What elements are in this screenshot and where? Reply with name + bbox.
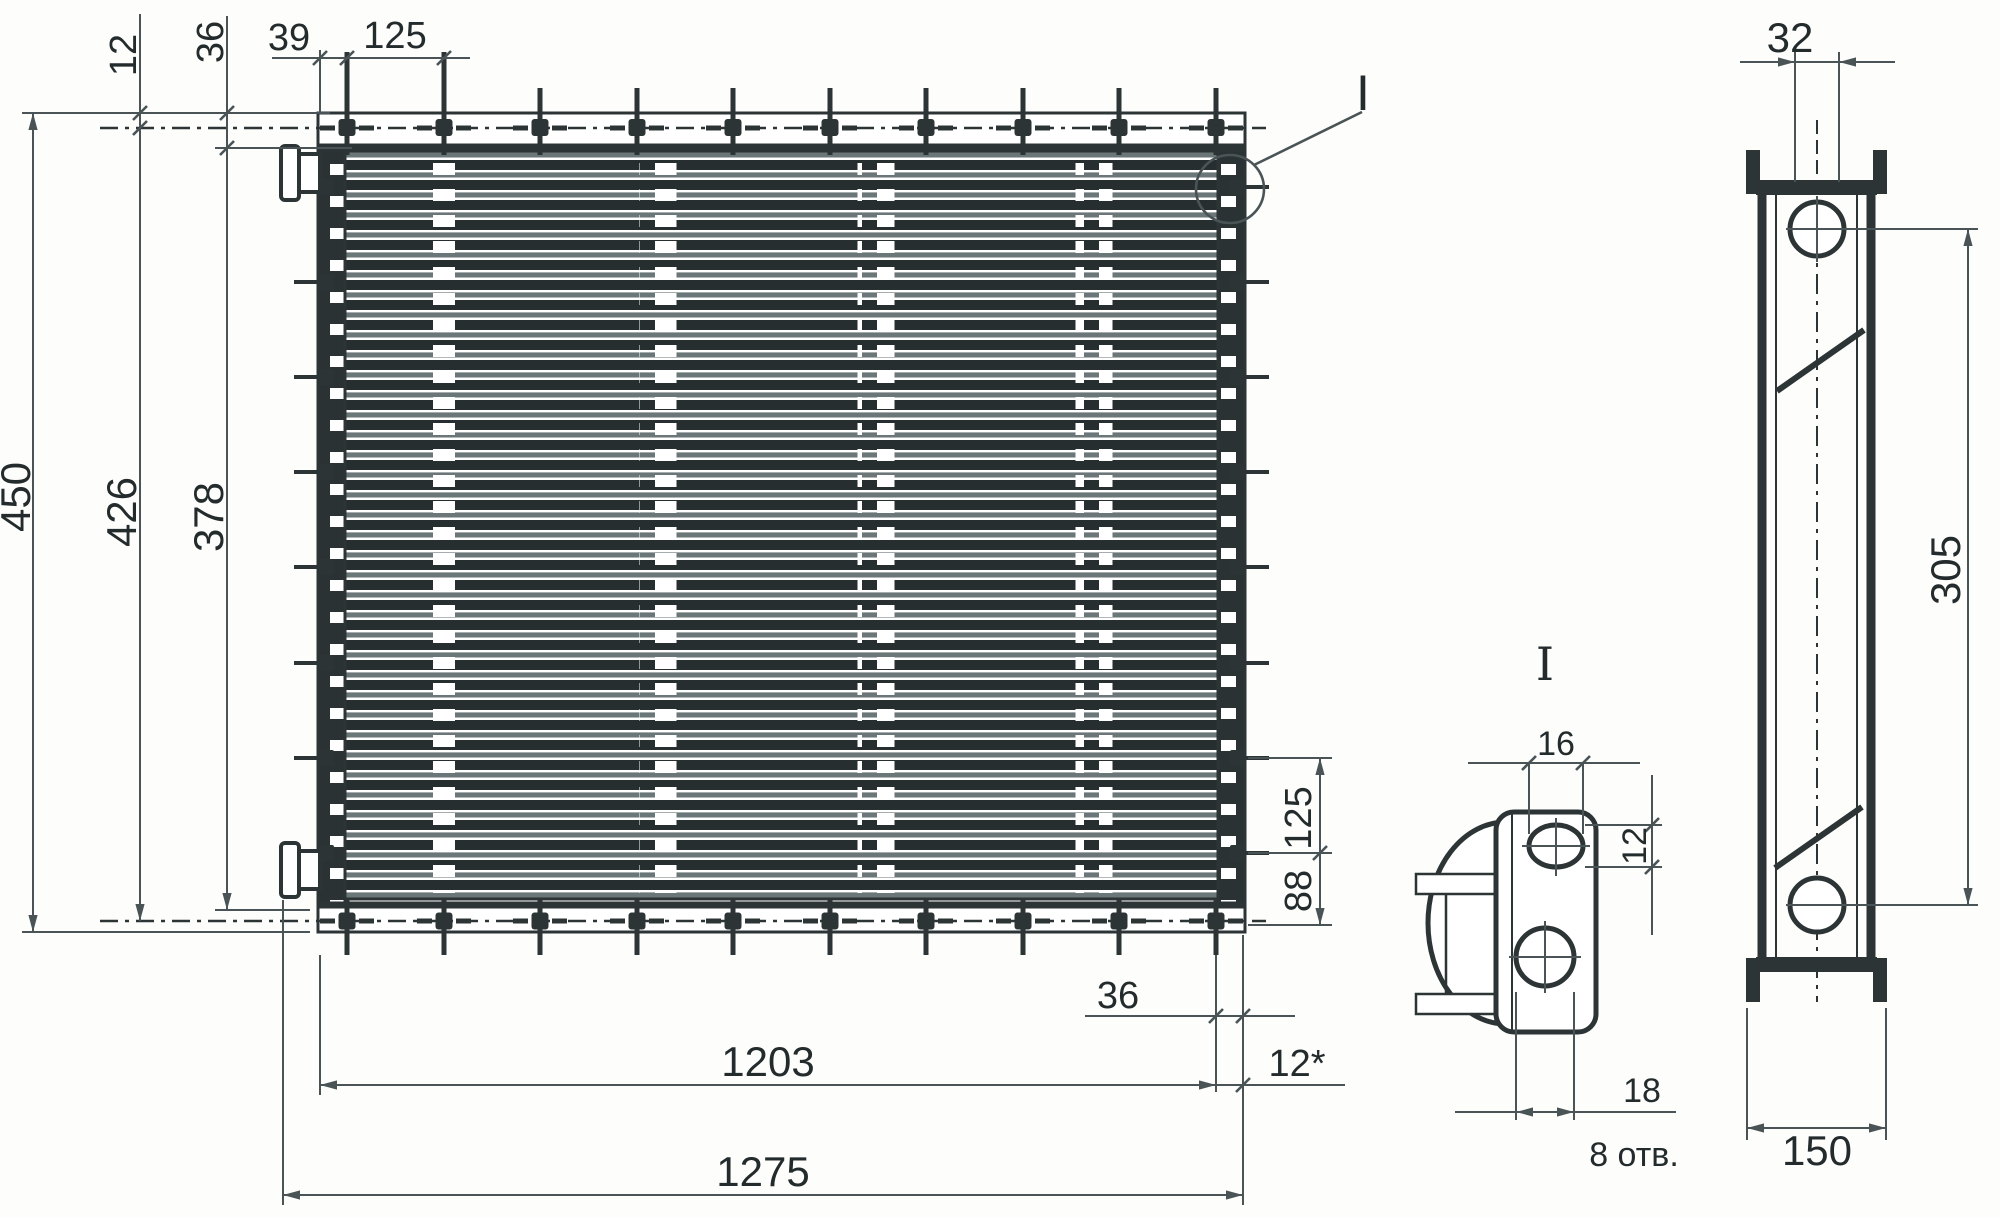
dim-arrow xyxy=(1963,229,1972,246)
dim-hole-spacing: 305 xyxy=(1922,535,1969,605)
bottom-stud-nut xyxy=(725,913,742,930)
dim-arrow xyxy=(1199,1080,1216,1089)
top-stud-nut xyxy=(1111,119,1128,136)
dim-bolt-frame-width: 1203 xyxy=(721,1038,814,1085)
dim-bottom-reference: 12* xyxy=(1268,1043,1325,1085)
detail-view xyxy=(1416,812,1596,1032)
right-side-stud-nut xyxy=(1230,274,1246,290)
bottom-stud-nut xyxy=(1208,913,1225,930)
dim-core-height: 378 xyxy=(185,482,232,552)
left-side-stud-nut xyxy=(318,464,334,480)
bottom-stud-nut xyxy=(436,913,453,930)
front-view xyxy=(100,52,1269,955)
dim-bolt-line-height: 426 xyxy=(98,477,145,547)
bottom-stud-nut xyxy=(822,913,839,930)
right-channel xyxy=(1218,145,1245,910)
bottom-stud-nut xyxy=(629,913,646,930)
note-holes-count: 8 отв. xyxy=(1589,1136,1679,1174)
dim-right-side-bottom-margin: 88 xyxy=(1278,870,1320,912)
bottom-stud-nut xyxy=(1015,913,1032,930)
dim-slot-height: 12 xyxy=(1616,827,1654,865)
right-side-stud-nut xyxy=(1230,464,1246,480)
top-stud-nut xyxy=(1015,119,1032,136)
left-side-stud-nut xyxy=(318,655,334,671)
left-side-stud-nut xyxy=(318,559,334,575)
dim-arrow xyxy=(1315,758,1324,775)
bottom-connector-neck xyxy=(299,851,320,889)
dim-arrow xyxy=(320,1080,337,1089)
dim-arrow xyxy=(135,904,144,921)
left-side-stud-nut xyxy=(318,274,334,290)
top-stud-nut xyxy=(1208,119,1225,136)
top-connector-neck xyxy=(299,154,320,192)
dim-arrow xyxy=(1747,1123,1764,1132)
dim-overall-height: 450 xyxy=(0,462,39,532)
top-stud-nut xyxy=(822,119,839,136)
right-side-stud-nut xyxy=(1230,179,1246,195)
engineering-drawing-page: 450 426 378 12 36 39 125 125 88 36 12* 1… xyxy=(0,0,2000,1217)
dim-arrow xyxy=(1839,57,1856,66)
bottom-stud-nut xyxy=(1111,913,1128,930)
dim-hole-diameter: 18 xyxy=(1623,1072,1661,1110)
engineering-drawing-canvas: 450 426 378 12 36 39 125 125 88 36 12* 1… xyxy=(0,0,2000,1217)
dim-arrow xyxy=(1963,888,1972,905)
right-side-stud-nut xyxy=(1230,750,1246,766)
dim-tube-width: 32 xyxy=(1767,14,1814,61)
top-stud-nut xyxy=(532,119,549,136)
top-stud-nut xyxy=(725,119,742,136)
dim-arrow xyxy=(283,1190,300,1199)
detail-callout-leader xyxy=(1254,112,1362,165)
top-stud-nut xyxy=(339,119,356,136)
dim-overall-depth: 150 xyxy=(1782,1127,1852,1174)
top-stud-nut xyxy=(436,119,453,136)
dim-bottom-stud-margin: 36 xyxy=(1097,975,1139,1017)
bottom-stud-nut xyxy=(532,913,549,930)
left-side-stud-nut xyxy=(318,369,334,385)
dim-arrow xyxy=(1516,1107,1533,1116)
dim-overall-width: 1275 xyxy=(716,1148,809,1195)
dim-right-side-pitch: 125 xyxy=(1278,786,1320,849)
left-side-stud-nut xyxy=(318,750,334,766)
dim-arrow xyxy=(1557,1107,1574,1116)
side-diagonal-mark xyxy=(1777,330,1864,391)
dim-arrow xyxy=(28,915,37,932)
right-side-stud-nut xyxy=(1230,655,1246,671)
dim-stud-edge-offset: 39 xyxy=(268,17,310,59)
right-side-stud-nut xyxy=(1230,845,1246,861)
side-bottom-tab-right xyxy=(1873,958,1887,1002)
dim-arrow xyxy=(28,113,37,130)
side-diagonal-mark xyxy=(1775,807,1862,868)
tube-column xyxy=(640,156,677,893)
detail-callout-label: I xyxy=(1356,65,1370,121)
right-side-stud-nut xyxy=(1230,559,1246,575)
tube-column xyxy=(422,156,459,893)
bottom-stud-nut xyxy=(339,913,356,930)
dim-arrow xyxy=(1226,1190,1243,1199)
side-top-plate xyxy=(1756,180,1877,195)
dim-arrow xyxy=(222,893,231,910)
left-channel xyxy=(318,145,345,910)
dim-edge-margin: 36 xyxy=(190,21,232,63)
bottom-connector-flange xyxy=(281,843,299,897)
tube-column xyxy=(1076,156,1113,893)
dim-stud-pitch: 125 xyxy=(363,15,426,57)
right-side-stud-nut xyxy=(1230,369,1246,385)
side-bottom-tab-left xyxy=(1746,958,1760,1002)
dim-rail-offset: 12 xyxy=(103,34,145,76)
detail-view-title: I xyxy=(1536,637,1554,691)
bottom-stud-nut xyxy=(918,913,935,930)
dim-slot-width: 16 xyxy=(1537,725,1575,763)
top-stud-nut xyxy=(918,119,935,136)
tube-column xyxy=(858,156,895,893)
dim-arrow xyxy=(1869,1123,1886,1132)
top-connector-flange xyxy=(281,146,299,200)
top-stud-nut xyxy=(629,119,646,136)
